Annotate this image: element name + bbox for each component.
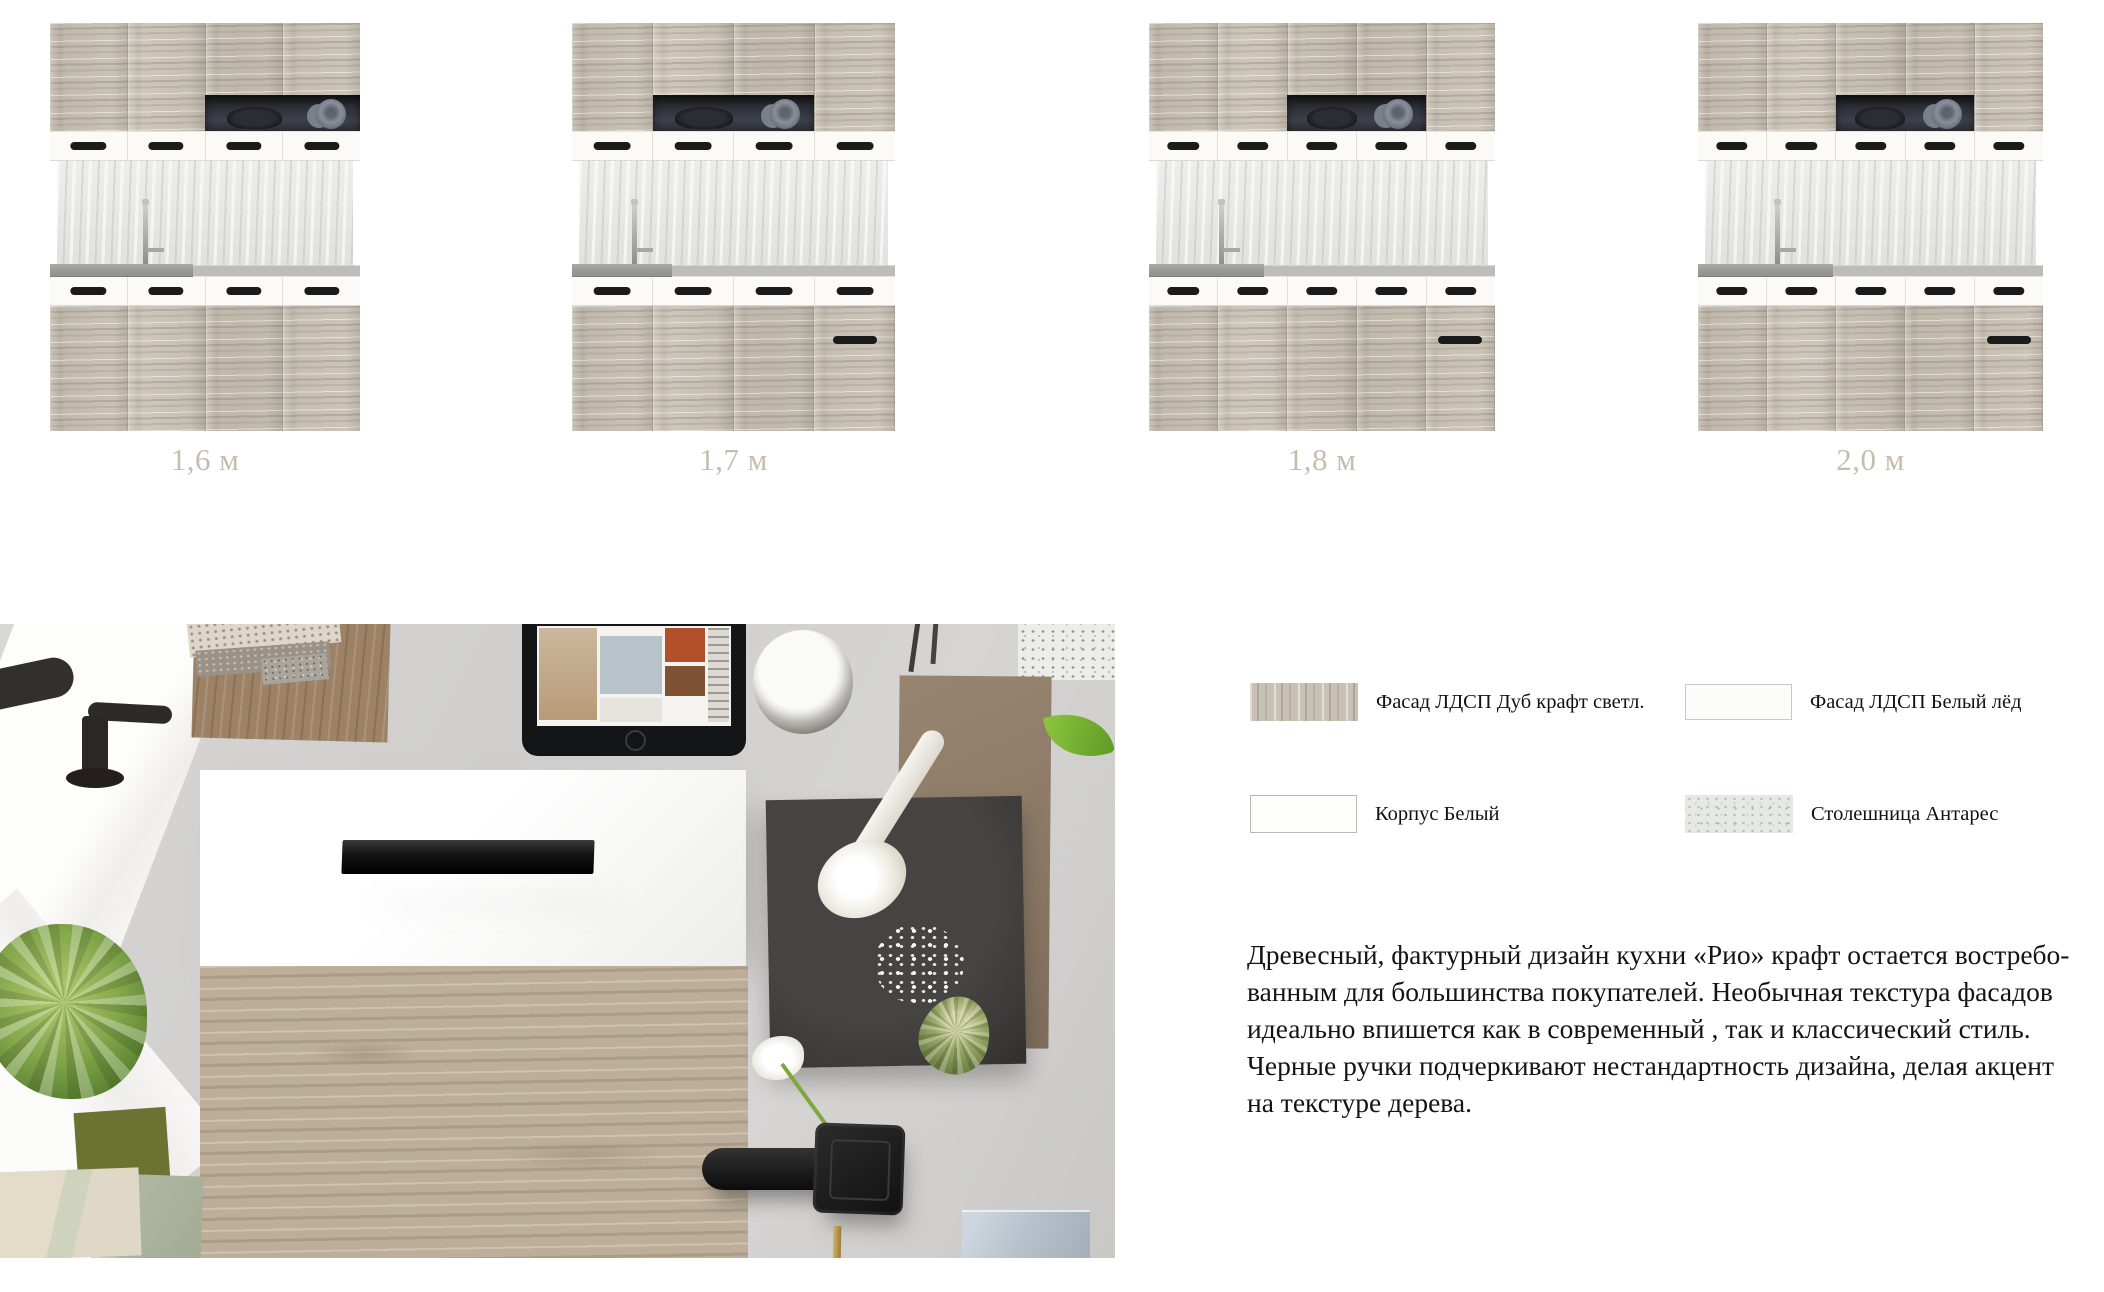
description-line: Черные ручки подчеркивают нестандартност… xyxy=(1247,1047,2104,1084)
open-shelf-dishes xyxy=(1836,95,1974,131)
sink xyxy=(572,264,672,277)
backsplash xyxy=(1156,161,1488,265)
photo-tablet-screen xyxy=(537,626,731,726)
material-label: Фасад ЛДСП Дуб крафт светл. xyxy=(1376,691,1645,714)
swatch-white-body xyxy=(1250,795,1357,833)
material-label: Столешница Антарес xyxy=(1811,803,1998,826)
open-shelf-dishes xyxy=(1287,95,1425,131)
open-shelf-dishes xyxy=(653,95,815,131)
lower-drawer-row xyxy=(50,276,360,306)
kitchen-size-label: 2,0 м xyxy=(1698,442,2043,478)
photo-oak-facade-sample xyxy=(200,966,748,1258)
photo-artichoke xyxy=(0,924,147,1099)
description-line: Древесный, фактурный дизайн кухни «Рио» … xyxy=(1247,936,2104,973)
kitchen-size-label: 1,7 м xyxy=(572,442,895,478)
countertop xyxy=(1698,265,2043,276)
photo-faucet-base xyxy=(66,768,124,788)
lower-cabinets xyxy=(1149,306,1495,431)
sink xyxy=(1149,264,1264,277)
lower-drawer-row xyxy=(1149,276,1495,306)
description-line: идеально впишется как в современный , та… xyxy=(1247,1010,2104,1047)
kitchen-size-option-2[interactable]: 1,7 м xyxy=(572,23,895,478)
upper-drawer-row xyxy=(572,131,895,161)
kitchen-size-label: 1,6 м xyxy=(50,442,360,478)
photo-faucet-handle xyxy=(60,694,170,804)
material-label: Фасад ЛДСП Белый лёд xyxy=(1810,691,2022,714)
sink xyxy=(1698,264,1833,277)
sink xyxy=(50,264,193,277)
kitchen-size-option-4[interactable]: 2,0 м xyxy=(1698,23,2043,478)
upper-drawer-row xyxy=(1698,131,2043,161)
lower-cabinets xyxy=(50,306,360,431)
description-line: на текстуре дерева. xyxy=(1247,1084,2104,1121)
materials-photo xyxy=(0,624,1115,1258)
photo-onyx-cube xyxy=(0,1167,141,1258)
kitchen-render-1-7 xyxy=(572,23,895,431)
countertop xyxy=(50,265,360,276)
backsplash xyxy=(579,161,888,265)
photo-cord xyxy=(908,624,920,672)
material-label: Корпус Белый xyxy=(1375,803,1499,826)
kitchen-size-option-3[interactable]: 1,8 м xyxy=(1149,23,1495,478)
photo-green-leaf xyxy=(1043,703,1115,767)
faucet xyxy=(632,203,637,265)
kitchen-size-option-1[interactable]: 1,6 м xyxy=(50,23,360,478)
faucet xyxy=(1775,203,1780,265)
photo-faucet-post xyxy=(82,716,108,774)
description-line: ванным для большинства покупателей. Необ… xyxy=(1247,973,2104,1010)
backsplash xyxy=(57,161,353,265)
product-page: { "sizes": [ {"label":"1,6 м","left":50,… xyxy=(0,0,2104,1292)
photo-glass-sample xyxy=(962,1210,1090,1258)
kitchen-size-label: 1,8 м xyxy=(1149,442,1495,478)
upper-drawer-row xyxy=(50,131,360,161)
photo-salt-spill xyxy=(874,924,964,1004)
swatch-antares-countertop xyxy=(1685,795,1793,833)
backsplash xyxy=(1705,161,2036,265)
photo-door-handle-rosette xyxy=(812,1122,905,1215)
countertop xyxy=(572,265,895,276)
lower-drawer-row xyxy=(1698,276,2043,306)
faucet xyxy=(1219,203,1224,265)
photo-salt-bowl xyxy=(753,630,853,734)
photo-white-flower xyxy=(752,1036,804,1080)
photo-terrazzo-sample xyxy=(1018,624,1115,680)
countertop xyxy=(1149,265,1495,276)
material-item: Столешница Антарес xyxy=(1685,795,1998,833)
photo-brass-stick xyxy=(833,1226,842,1258)
swatch-white-ice xyxy=(1685,684,1792,720)
kitchen-render-1-6 xyxy=(50,23,360,431)
faucet xyxy=(143,203,148,265)
kitchen-render-2-0 xyxy=(1698,23,2043,431)
kitchen-render-1-8 xyxy=(1149,23,1495,431)
swatch-oak-craft-light xyxy=(1250,683,1358,721)
open-shelf-dishes xyxy=(205,95,360,131)
photo-tablet xyxy=(522,624,746,756)
photo-cord xyxy=(930,624,938,664)
lower-cabinets xyxy=(572,306,895,431)
photo-tablet-home-button xyxy=(625,730,646,751)
lower-cabinets xyxy=(1698,306,2043,431)
lower-drawer-row xyxy=(572,276,895,306)
material-item: Фасад ЛДСП Дуб крафт светл. xyxy=(1250,683,1645,721)
material-item: Фасад ЛДСП Белый лёд xyxy=(1685,684,2022,720)
product-description: Древесный, фактурный дизайн кухни «Рио» … xyxy=(1247,936,2104,1121)
upper-drawer-row xyxy=(1149,131,1495,161)
material-item: Корпус Белый xyxy=(1250,795,1499,833)
photo-black-cabinet-handle xyxy=(341,840,594,874)
